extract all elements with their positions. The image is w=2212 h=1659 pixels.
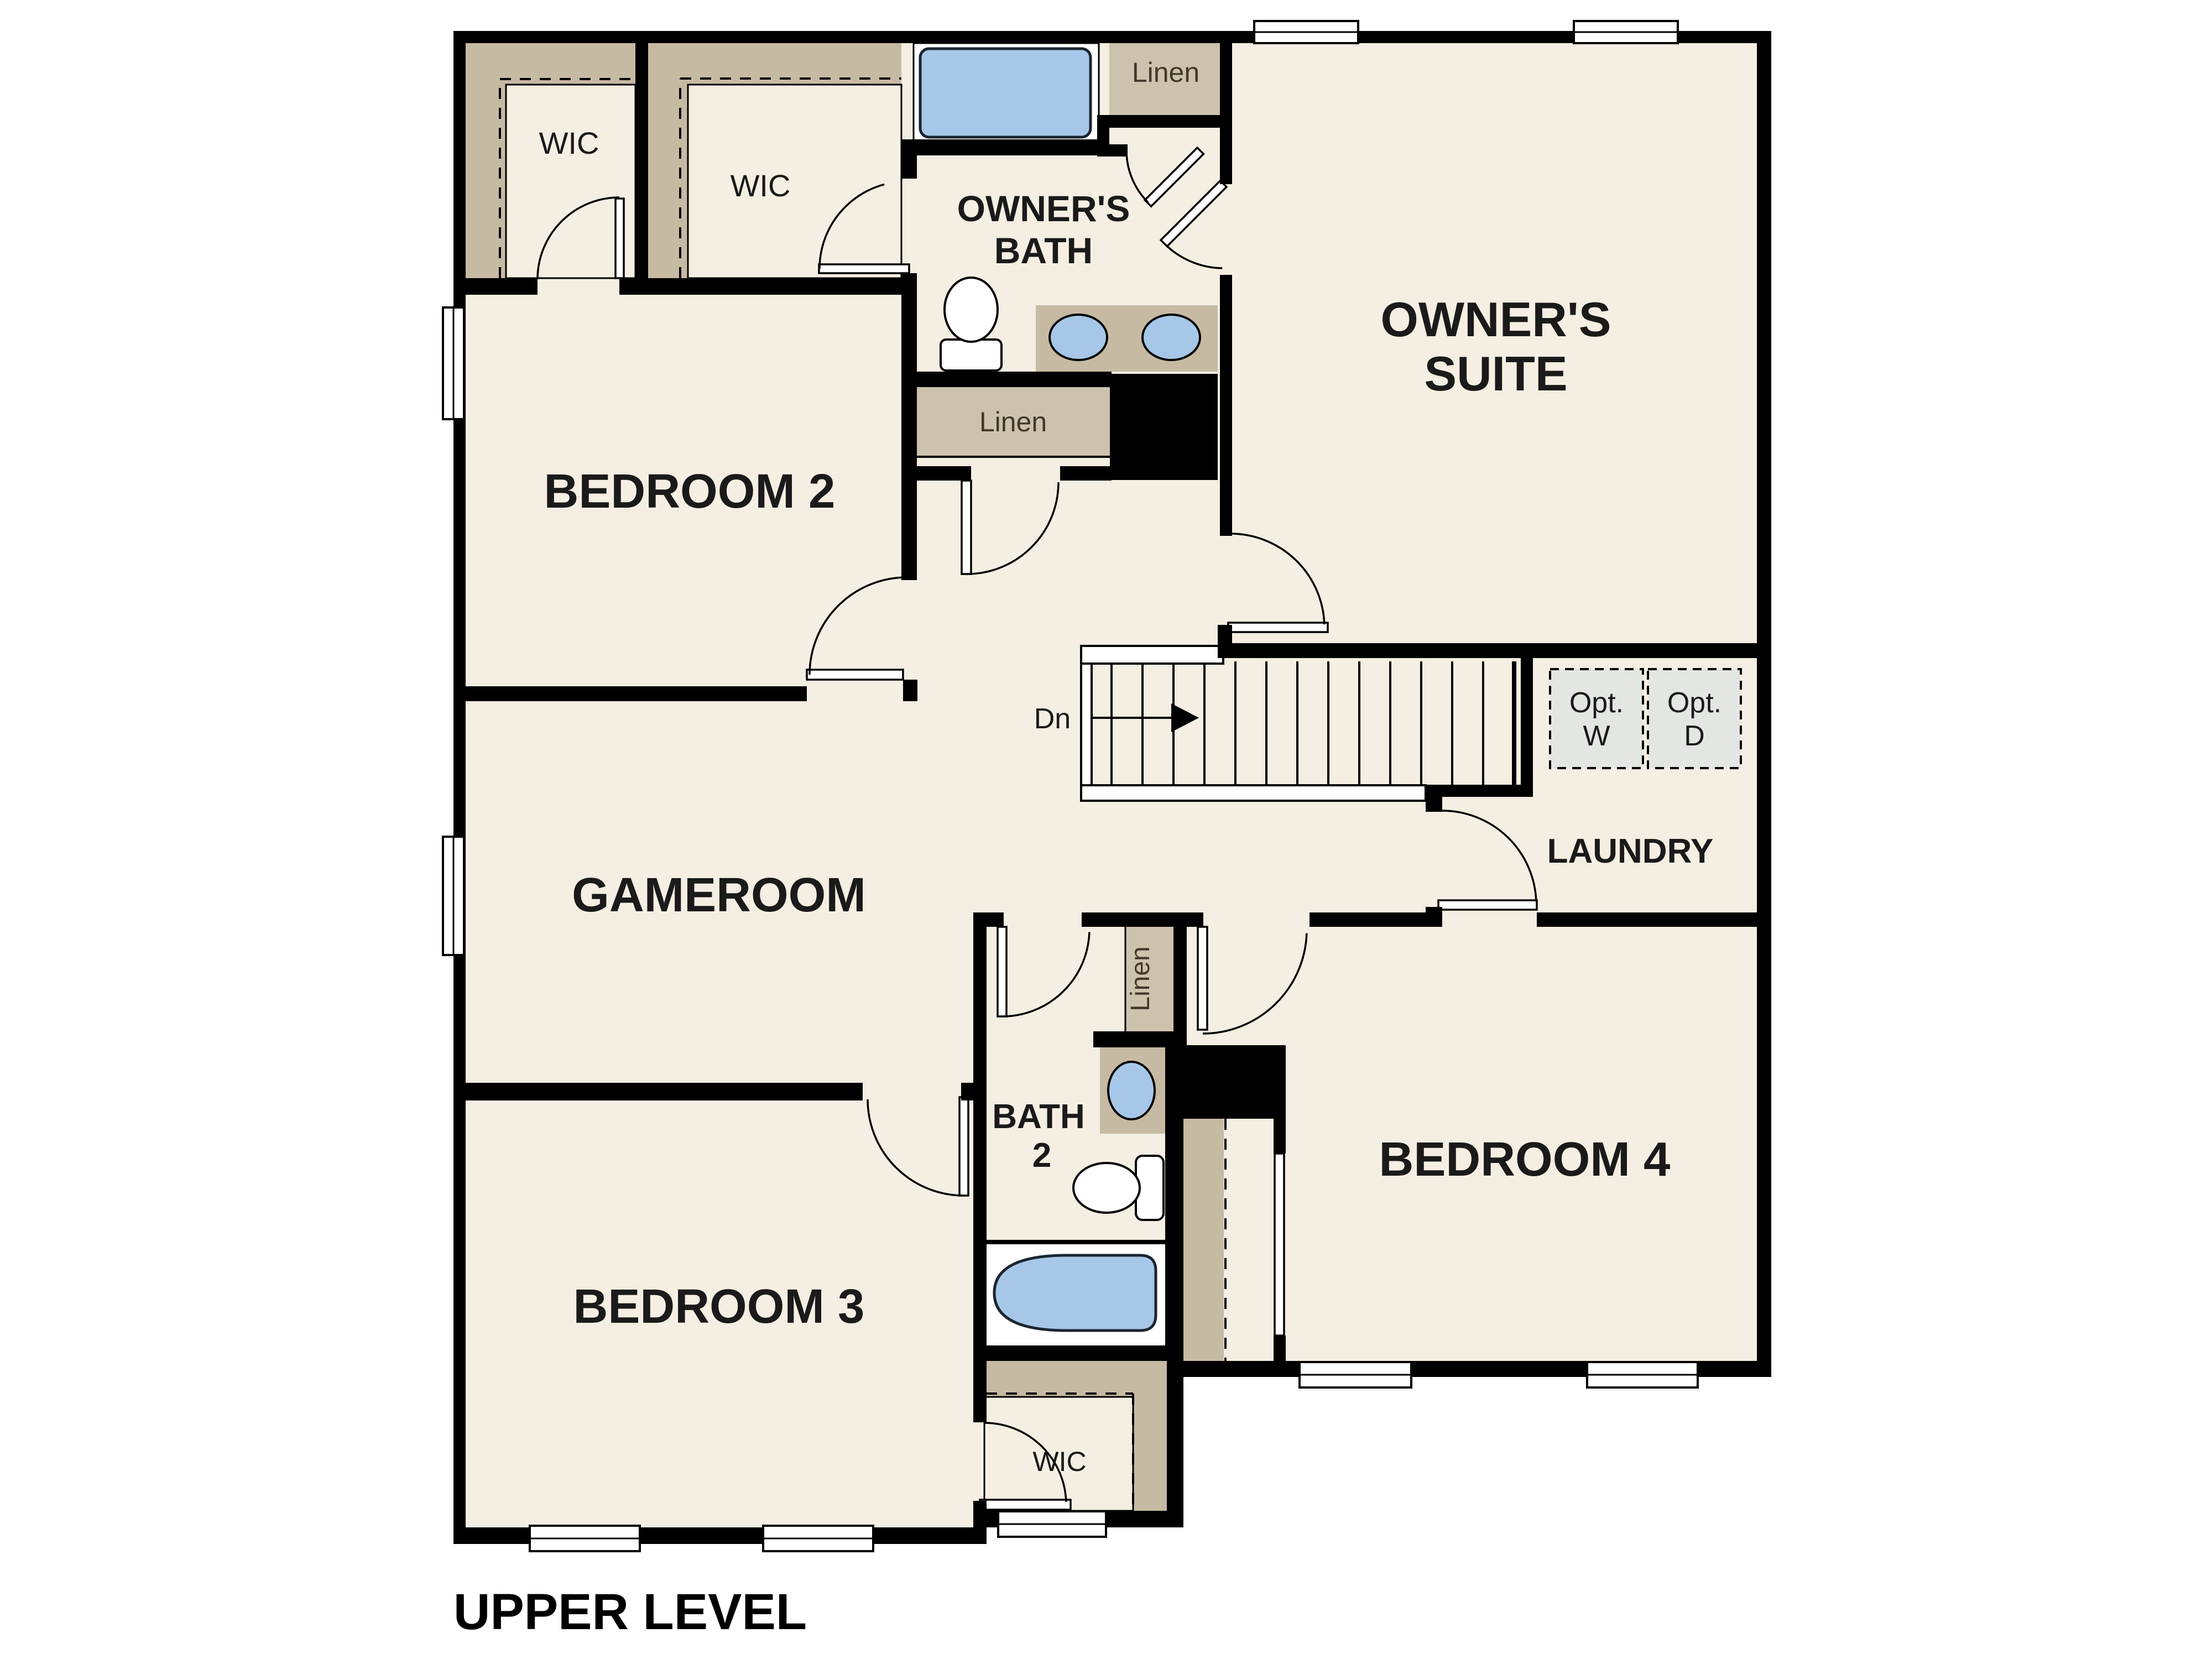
svg-text:WIC: WIC <box>731 168 791 203</box>
svg-text:BEDROOM 2: BEDROOM 2 <box>544 465 836 518</box>
svg-text:W: W <box>1583 720 1610 752</box>
svg-text:Linen: Linen <box>1132 57 1199 88</box>
svg-text:LAUNDRY: LAUNDRY <box>1547 832 1714 870</box>
svg-text:OWNER'S: OWNER'S <box>1381 292 1611 347</box>
svg-text:UPPER LEVEL: UPPER LEVEL <box>453 1584 807 1640</box>
svg-text:SUITE: SUITE <box>1424 346 1567 401</box>
svg-text:BATH: BATH <box>994 230 1093 271</box>
svg-text:WIC: WIC <box>539 126 599 160</box>
svg-text:Linen: Linen <box>1126 946 1155 1011</box>
svg-text:D: D <box>1684 720 1705 752</box>
svg-text:BEDROOM 4: BEDROOM 4 <box>1379 1133 1671 1186</box>
svg-text:Opt.: Opt. <box>1569 687 1624 719</box>
svg-text:BEDROOM 3: BEDROOM 3 <box>573 1280 865 1333</box>
svg-text:Opt.: Opt. <box>1667 687 1721 719</box>
svg-text:Linen: Linen <box>979 406 1047 437</box>
svg-text:Dn: Dn <box>1034 703 1071 735</box>
svg-text:GAMEROOM: GAMEROOM <box>572 868 866 922</box>
svg-text:2: 2 <box>1032 1136 1051 1175</box>
svg-text:BATH: BATH <box>992 1098 1085 1136</box>
svg-text:OWNER'S: OWNER'S <box>957 188 1130 229</box>
